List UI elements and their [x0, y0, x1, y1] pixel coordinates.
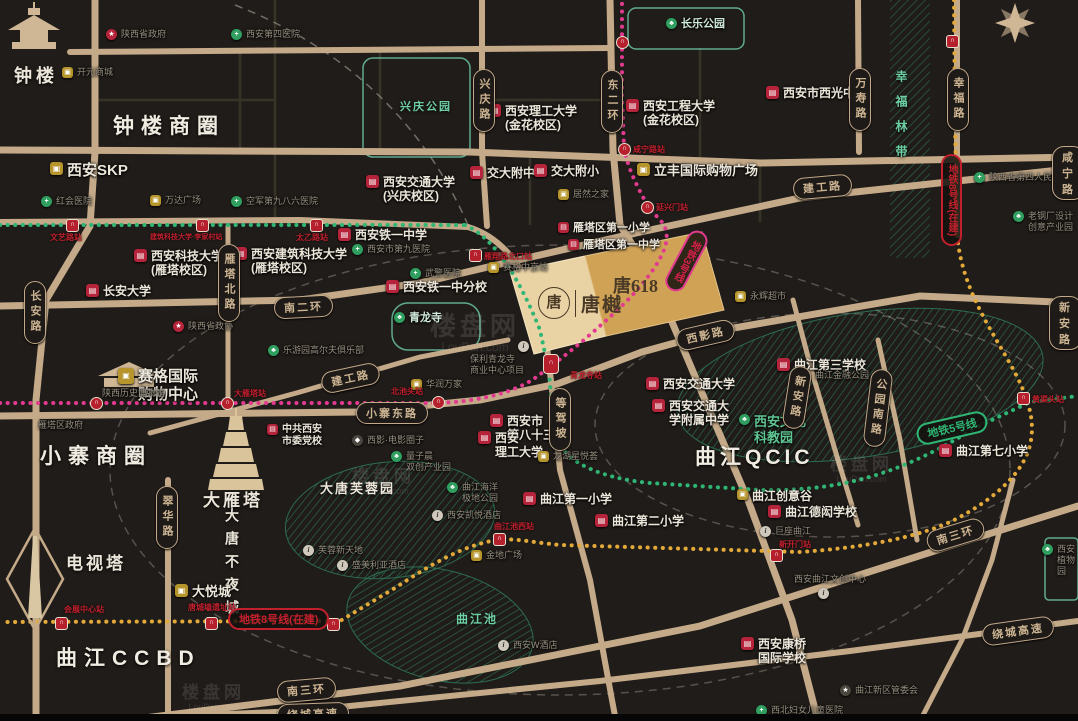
- project-block-tangyue: 唐 唐樾: [538, 287, 623, 319]
- school-poi: ▤西安建筑科技大学 (雁塔校区): [234, 247, 347, 276]
- school-icon: ▤: [558, 222, 569, 233]
- info-icon: i: [498, 640, 509, 651]
- school-icon: ▤: [490, 414, 503, 427]
- metro-station: ∩: [770, 549, 783, 562]
- road-label: 翠华路: [156, 486, 178, 549]
- metro-station-label: 雁翔路北口站: [484, 251, 532, 262]
- road-label: 东二环: [601, 70, 623, 133]
- metro-station: ∩: [90, 397, 103, 410]
- hospital-icon: +: [41, 196, 52, 207]
- hospital-poi: +西安第四医院: [231, 29, 300, 40]
- big-wild-goose-pagoda-icon: [208, 408, 264, 490]
- metro-station-label: 文艺路站: [50, 232, 82, 243]
- school-icon: ▤: [267, 424, 278, 435]
- place-poi: ♣乐游园高尔夫俱乐部: [268, 345, 364, 356]
- gov-icon: ★: [173, 321, 184, 332]
- school-poi: ▤西安科技大学 (雁塔校区): [134, 249, 223, 278]
- qinglong-temple-outline: [392, 303, 480, 350]
- info-icon: i: [760, 526, 771, 537]
- hospital-icon: +: [231, 196, 242, 207]
- shopping-poi: ▣永辉超市: [735, 291, 786, 302]
- road-label: 咸宁路: [1052, 146, 1078, 200]
- gov-icon: ★: [106, 29, 117, 40]
- metro-station: ∩: [310, 219, 323, 232]
- place-poi: ♣曲江海洋 极地公园: [447, 482, 498, 504]
- metro-station: ∩: [618, 143, 631, 156]
- metro-station: ∩: [543, 354, 559, 374]
- tv-tower-icon: [7, 528, 63, 630]
- compass-icon: [987, 0, 1044, 51]
- school-poi: ▤曲江第二小学: [595, 514, 684, 528]
- hospital-icon: +: [974, 172, 985, 183]
- school-icon: ▤: [470, 166, 483, 179]
- shopping-poi: ▣万达广场: [150, 195, 201, 206]
- landmark-label-furong-garden: 大唐芙蓉园: [320, 478, 395, 497]
- metro-station-label: 大雁塔站: [234, 388, 266, 399]
- shopping-poi: ▣金地广场: [471, 550, 522, 561]
- place-label: 雁塔区政府: [38, 420, 83, 431]
- metro-line-label: 地铁8号线(在建): [228, 608, 329, 630]
- school-icon: ▤: [646, 377, 659, 390]
- metro-station-label: 会展中心站: [64, 604, 104, 615]
- shopping-poi: ▣赛格中京坊: [488, 262, 548, 273]
- metro-station: ∩: [469, 249, 482, 262]
- district-label-qujiang-ccbd: 曲江CCBD: [56, 642, 201, 672]
- park-icon: ♣: [391, 451, 402, 462]
- metro-station: ∩: [196, 219, 209, 232]
- metro-station-label: 北池头站: [391, 386, 423, 397]
- metro-station: ∩: [55, 617, 68, 630]
- school-icon: ▤: [366, 175, 379, 188]
- metro-station: ∩: [616, 36, 629, 49]
- park-icon: ♣: [739, 414, 750, 425]
- school-icon: ▤: [939, 444, 952, 457]
- hospital-poi: +武警医院: [410, 268, 461, 279]
- shopping-poi: ▣开元商城: [62, 67, 113, 78]
- metro-station: ∩: [641, 201, 654, 214]
- school-poi: ▤西安交通大 学附属中学: [652, 399, 729, 428]
- school-icon: ▤: [595, 514, 608, 527]
- metro-station: ∩: [1017, 392, 1030, 405]
- landmark-label-qujiang-pool: 曲江池: [456, 610, 498, 627]
- road-label: 等驾坡: [549, 388, 571, 451]
- school-icon: ▤: [523, 492, 536, 505]
- metro-station-label: 太乙路站: [296, 232, 328, 243]
- school-poi: ▤西安工程大学 (金花校区): [626, 99, 715, 128]
- school-poi: ▤中共西安 市委党校: [267, 424, 322, 448]
- road-label: 幸福路: [947, 68, 969, 131]
- metro-station-label: 唐城墙遗址站: [188, 602, 236, 613]
- school-poi: ▤雁塔区第一小学: [558, 222, 650, 235]
- place-icon: ◆: [352, 435, 363, 446]
- school-poi: ▤西安交通大学: [646, 377, 735, 391]
- shopping-poi: ▣立丰国际购物广场: [637, 163, 758, 179]
- bell-tower-icon: [8, 2, 60, 49]
- mall-icon: ▣: [637, 163, 650, 176]
- shopping-poi: ▣龙湖星悦荟: [538, 451, 598, 462]
- district-label-xiaozhai: 小寨商圈: [40, 440, 152, 470]
- tangyue-seal-icon: 唐: [538, 287, 570, 319]
- metro-station-label: 青龙寺站: [570, 370, 602, 381]
- hospital-icon: +: [352, 244, 363, 255]
- school-poi: ▤西安康桥 国际学校: [741, 637, 806, 666]
- school-icon: ▤: [626, 99, 639, 112]
- landmark-label-xingfu-greenbelt: 幸福林带: [893, 70, 910, 170]
- road-label: 雁塔北路: [218, 244, 240, 322]
- metro-station: ∩: [205, 617, 218, 630]
- project-name: 唐618: [613, 272, 658, 298]
- hospital-icon: +: [231, 29, 242, 40]
- school-poi: ▤交大附小: [534, 164, 599, 178]
- landmark-qinglong-temple: ♣ 青龙寺: [394, 312, 442, 325]
- metro-station-label: 咸宁路站: [633, 144, 665, 155]
- hospital-poi: +空军第九八六医院: [231, 196, 318, 207]
- metro-station-label: 曲江池西站: [494, 521, 534, 532]
- park-icon: ♣: [394, 312, 405, 323]
- hospital-icon: +: [410, 268, 421, 279]
- school-poi: ▤长安大学: [86, 284, 151, 298]
- place-poi: i盛美利亚酒店: [337, 560, 406, 571]
- place-poi: ♣老钢厂设计 创意产业园: [1013, 211, 1073, 233]
- xian-location-map: 钟楼商圈 小寨商圈 曲江CCBD 曲江QCIC 钟楼 大雁塔 电视塔 大唐不夜城…: [0, 0, 1078, 721]
- metro-station-label: 新开门站: [779, 539, 811, 550]
- info-icon: i: [818, 588, 829, 599]
- metro-station-label: 黄渠头站: [1032, 394, 1064, 405]
- district-label-zhonglou: 钟楼商圈: [113, 110, 225, 140]
- park-icon: ♣: [268, 345, 279, 356]
- metro-station-label: 建筑科技大学·李家村站: [150, 232, 222, 242]
- shopping-poi: ▣居然之家: [558, 189, 609, 200]
- school-poi: ▤交大附中: [470, 166, 535, 180]
- park-icon: ♣: [666, 18, 677, 29]
- school-icon: ▤: [741, 637, 754, 650]
- place-poi: 西安曲江文创中心: [794, 574, 866, 585]
- park-icon: ♣: [1042, 544, 1053, 555]
- place-poi: ★曲江新区管委会: [840, 685, 918, 696]
- place-poi: i西安W酒店: [498, 640, 558, 651]
- mall-icon: ▣: [50, 162, 63, 175]
- school-icon: ▤: [777, 358, 790, 371]
- landmark-changle-park: ♣ 长乐公园: [666, 18, 725, 31]
- school-poi: ▤西安交通大学 (兴庆校区): [366, 175, 455, 204]
- school-poi: ▤曲江第七小学: [939, 444, 1028, 458]
- district-label-qujiang-qcic: 曲江QCIC: [695, 441, 814, 471]
- road-label: 长安路: [24, 281, 46, 344]
- metro-station: ∩: [493, 533, 506, 546]
- landmark-label-tv-tower: 电视塔: [66, 549, 126, 574]
- school-icon: ▤: [568, 239, 579, 250]
- shopping-poi: ▣西安SKP: [50, 162, 128, 180]
- mall-icon: ▣: [62, 67, 73, 78]
- school-icon: ▤: [86, 284, 99, 297]
- mall-icon: ▣: [558, 189, 569, 200]
- mall-icon: ▣: [737, 489, 748, 500]
- mall-icon: ▣: [488, 262, 499, 273]
- place-poi: ◆西影·电影圈子: [352, 435, 424, 446]
- school-poi: ▤雁塔区第一中学: [568, 239, 660, 252]
- place-poi: ★陕西省政府: [106, 29, 166, 40]
- info-icon: i: [432, 510, 443, 521]
- metro-line-label: 地铁8号线(在建): [941, 154, 962, 246]
- place-poi: ♣量子晨 双创产业园: [391, 451, 451, 473]
- mall-icon: ▣: [735, 291, 746, 302]
- shopping-poi: ▣大悦城: [175, 584, 231, 600]
- mall-icon: ▣: [118, 368, 134, 384]
- park-icon: ♣: [447, 482, 458, 493]
- mall-icon: ▣: [538, 451, 549, 462]
- school-poi: ▤西安 理工大学: [478, 431, 543, 460]
- road-label: 新安路: [1049, 296, 1078, 350]
- school-icon: ▤: [478, 431, 491, 444]
- road-label: 小寨东路: [356, 402, 428, 424]
- metro-station-label: 延兴门站: [656, 202, 688, 213]
- metro-station: ∩: [66, 219, 79, 232]
- school-icon: ▤: [134, 249, 147, 262]
- place-poi: i西安凯悦酒店: [432, 510, 501, 521]
- info-icon: i: [303, 545, 314, 556]
- gov-seal-icon: ★: [840, 685, 851, 696]
- place-poi: ♣西安植物园: [1042, 544, 1078, 576]
- place-poi: ★陕西省政协: [173, 321, 233, 332]
- road-label: 兴庆路: [473, 69, 495, 132]
- mall-icon: ▣: [150, 195, 161, 206]
- place-poi: i巨座曲江: [760, 526, 811, 537]
- mall-icon: ▣: [175, 584, 188, 597]
- school-poi: ▤西安理工大学 (金花校区): [488, 104, 577, 133]
- bottom-bar: [0, 714, 1078, 721]
- landmark-label-xingqing-park: 兴庆公园: [400, 98, 452, 114]
- school-icon: ▤: [386, 280, 399, 293]
- school-poi: ▤西安铁一中分校: [386, 280, 487, 294]
- school-icon: ▤: [766, 86, 779, 99]
- school-icon: ▤: [338, 228, 351, 241]
- school-icon: ▤: [534, 164, 547, 177]
- road-label: 南二环: [273, 294, 333, 319]
- school-icon: ▤: [768, 505, 781, 518]
- school-poi: ▤西安铁一中学: [338, 228, 427, 242]
- place-label: 陕西历史博物馆: [102, 388, 165, 399]
- info-icon: i: [337, 560, 348, 571]
- school-poi: ▤曲江德闳学校: [768, 505, 857, 519]
- shopping-poi: ▣曲江创意谷: [737, 489, 812, 503]
- place-label: 保利青龙寺 商业中心项目: [470, 354, 524, 376]
- landmark-label-bell-tower: 钟楼: [14, 62, 58, 88]
- park-icon: ♣: [1013, 211, 1024, 222]
- metro-station: ∩: [432, 396, 445, 409]
- hospital-poi: +红会医院: [41, 196, 92, 207]
- project-block-tang618: 唐618: [613, 272, 658, 298]
- school-poi: ▤曲江第一小学: [523, 492, 612, 506]
- metro-station: ∩: [221, 397, 234, 410]
- metro-station: ∩: [946, 35, 959, 48]
- place-poi: i芙蓉新天地: [303, 545, 363, 556]
- info-icon: i: [518, 341, 529, 352]
- school-icon: ▤: [652, 399, 665, 412]
- mall-icon: ▣: [471, 550, 482, 561]
- road-label: 万寿路: [849, 68, 871, 131]
- hospital-poi: +西安市第九医院: [352, 244, 430, 255]
